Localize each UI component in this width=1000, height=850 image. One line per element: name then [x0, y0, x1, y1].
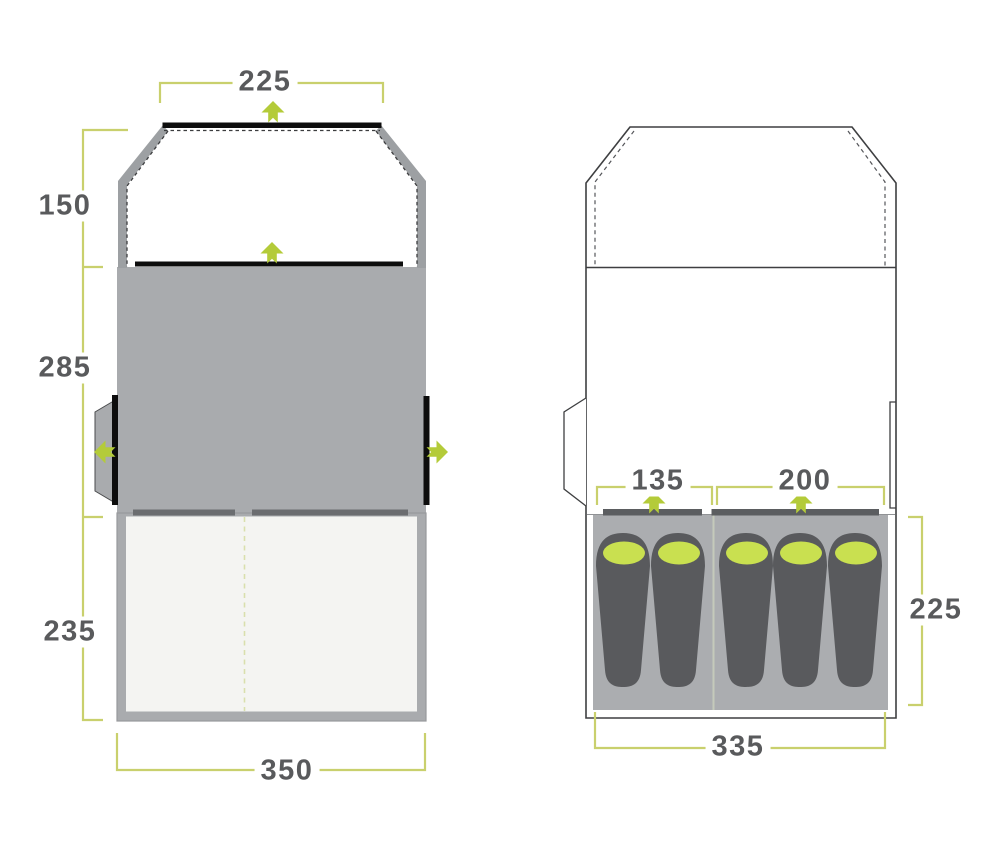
- dim-label-rear-depth: 150: [33, 191, 98, 222]
- rear-wall-band-left: [118, 125, 168, 268]
- floorplan-diagram: 225 150 285 235 350 135 200 225 335: [0, 0, 1000, 850]
- dim-label-small-bedroom-width: 135: [626, 466, 691, 497]
- up-arrow-icon: [262, 101, 285, 123]
- diagram-canvas: [0, 0, 1000, 850]
- dim-label-front-depth: 235: [38, 617, 103, 648]
- side-door-line-left: [112, 395, 118, 505]
- sleeping-bag-hood: [726, 542, 768, 565]
- front-door-bar-right: [252, 510, 408, 516]
- inner-door-line: [135, 262, 403, 267]
- dim-label-living-depth: 285: [33, 353, 98, 384]
- dim-label-bedroom-total-width: 335: [706, 732, 771, 763]
- dim-label-bedroom-depth: 225: [904, 595, 969, 626]
- right-arrow-icon: [427, 441, 449, 464]
- side-door-line-right: [424, 396, 430, 505]
- sleeping-bag-hood: [603, 542, 645, 565]
- sleeping-bag-hood: [835, 542, 877, 565]
- dim-label-rear-width: 225: [233, 67, 298, 98]
- front-door-bar-left: [133, 510, 235, 516]
- side-door-flap-outline: [564, 398, 586, 506]
- rear-door-line: [163, 123, 382, 129]
- bedroom-door-bar-large: [712, 509, 880, 516]
- up-arrow-icon: [261, 242, 284, 264]
- sleeping-bag-hood: [780, 542, 822, 565]
- right-view: [564, 127, 922, 748]
- left-view: [83, 83, 448, 770]
- dim-label-total-width: 350: [255, 756, 320, 787]
- rear-wall-band-right: [376, 125, 426, 268]
- living-area: [117, 267, 426, 513]
- front-canopy-floor: [126, 517, 417, 712]
- dim-label-large-bedroom-width: 200: [773, 466, 838, 497]
- sleeping-bag-hood: [658, 542, 700, 565]
